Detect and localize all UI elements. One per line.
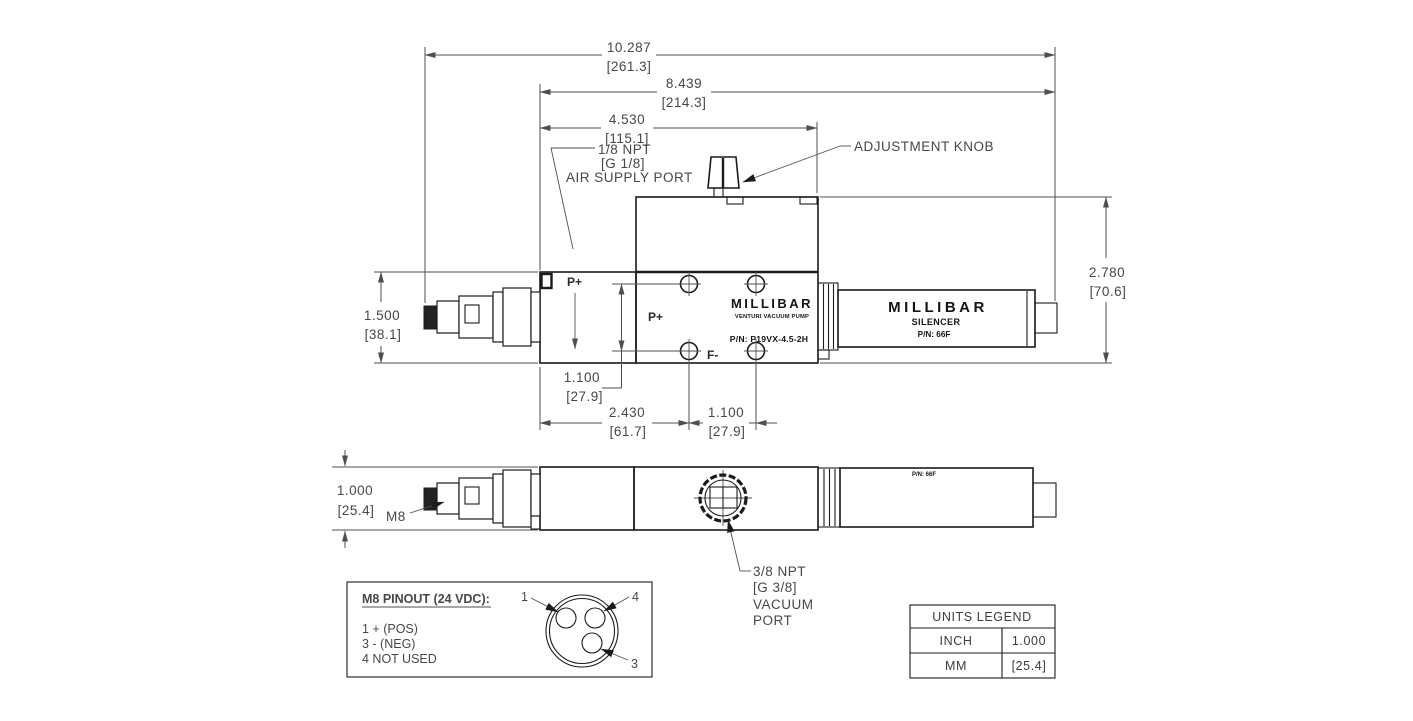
dim-overall-mm: [261.3] xyxy=(607,59,652,74)
pin-1-hole xyxy=(556,608,576,628)
m8-connector xyxy=(424,288,540,346)
f-minus-label: F- xyxy=(707,348,718,362)
silencer-body: MILLIBAR SILENCER P/N: 66F xyxy=(838,290,1035,347)
dim-body-silencer-in: 8.439 xyxy=(666,76,702,91)
pinout-line3: 4 NOT USED xyxy=(362,652,437,666)
top-tab-right xyxy=(800,197,817,204)
units-legend-mm-value: [25.4] xyxy=(1012,659,1047,673)
m8-connector-side xyxy=(424,470,540,527)
drawing-svg: P+ P+ F- MILLIBAR VENTURI VACUUM PUMP P/… xyxy=(0,0,1413,721)
mounting-hole xyxy=(677,272,701,296)
vacuum-port-line2: [G 3/8] xyxy=(753,580,797,595)
dim-hole-offset-h-in: 2.430 xyxy=(609,405,645,420)
silencer-end-cap xyxy=(1035,303,1057,333)
dim-body-silencer-mm: [214.3] xyxy=(662,95,707,110)
valve-notch-side xyxy=(531,516,540,529)
p-plus-valve-label: P+ xyxy=(567,275,582,289)
valve-body-side xyxy=(540,467,634,530)
silencer-part-number-side: P/N: 66F xyxy=(912,472,936,478)
pin-1-label: 1 xyxy=(521,590,528,604)
dim-pump-width-mm: [115.1] xyxy=(605,131,649,146)
dim-hole-offset-h-mm: [61.7] xyxy=(610,424,647,439)
silencer-interface xyxy=(818,283,838,359)
mounting-hole xyxy=(744,272,768,296)
silencer-part-number: P/N: 66F xyxy=(918,330,951,339)
top-view: P+ P+ F- MILLIBAR VENTURI VACUUM PUMP P/… xyxy=(424,157,1057,363)
pin-3-label: 3 xyxy=(631,657,638,671)
dim-pump-height-mm: [70.6] xyxy=(1090,284,1127,299)
pinout-line1: 1 + (POS) xyxy=(362,622,418,636)
engineering-drawing: P+ P+ F- MILLIBAR VENTURI VACUUM PUMP P/… xyxy=(0,0,1413,721)
dim-thickness-mm: [25.4] xyxy=(338,503,375,518)
pin-4-hole xyxy=(585,608,605,628)
dim-hole-spacing-v-mm: [27.9] xyxy=(566,389,603,404)
vacuum-port-line1: 3/8 NPT xyxy=(753,564,806,579)
dim-overall-in: 10.287 xyxy=(607,40,651,55)
silencer-name: SILENCER xyxy=(912,317,961,327)
m8-label: M8 xyxy=(386,509,406,524)
mounting-hole xyxy=(677,339,701,363)
pinout-heading: M8 PINOUT (24 VDC): xyxy=(362,592,490,606)
vacuum-port-line4: PORT xyxy=(753,613,792,628)
pinout-connector-face xyxy=(546,595,618,667)
units-legend-mm-label: MM xyxy=(945,659,967,673)
adjustment-knob-label: ADJUSTMENT KNOB xyxy=(854,139,994,154)
dim-overall: 10.287 [261.3] xyxy=(425,40,1055,303)
pinout-detail: M8 PINOUT (24 VDC): 1 + (POS) 3 - (NEG) … xyxy=(347,582,652,677)
air-supply-line3: AIR SUPPLY PORT xyxy=(566,170,693,185)
silencer-end-cap-side xyxy=(1033,483,1056,517)
pump-part-number: P/N: P19VX-4.5-2H xyxy=(730,334,808,344)
dim-hole-spacing-v-in: 1.100 xyxy=(564,370,600,385)
vacuum-port-callout: 3/8 NPT [G 3/8] VACUUM PORT xyxy=(728,520,814,628)
silencer-brand: MILLIBAR xyxy=(888,299,988,316)
dim-hole-spacing-v: 1.100 [27.9] xyxy=(564,284,679,404)
p-plus-pump-label: P+ xyxy=(648,310,663,324)
units-legend-inch-label: INCH xyxy=(940,634,973,648)
pin-3-hole xyxy=(582,633,602,653)
air-supply-line2: [G 1/8] xyxy=(601,156,645,171)
dim-hole-spacing-h-in: 1.100 xyxy=(708,405,744,420)
dim-hole-spacing-h-mm: [27.9] xyxy=(709,424,746,439)
units-legend-inch-value: 1.000 xyxy=(1012,634,1046,648)
units-legend: UNITS LEGEND INCH 1.000 MM [25.4] xyxy=(910,605,1055,678)
pump-brand: MILLIBAR xyxy=(731,296,813,311)
dim-pump-width-in: 4.530 xyxy=(609,112,645,127)
dim-pump-height: 2.780 [70.6] xyxy=(820,197,1126,363)
silencer-body-side: P/N: 66F xyxy=(840,468,1033,527)
pin-4-label: 4 xyxy=(632,590,639,604)
vacuum-port xyxy=(694,470,752,526)
dim-hole-spacing-h: 1.100 [27.9] xyxy=(689,405,777,439)
silencer-interface-side xyxy=(818,468,840,527)
dim-valve-height-mm: [38.1] xyxy=(365,327,402,342)
valve-notch xyxy=(542,274,552,288)
units-legend-title: UNITS LEGEND xyxy=(932,610,1032,624)
pinout-line2: 3 - (NEG) xyxy=(362,637,415,651)
bottom-view: P/N: 66F xyxy=(424,467,1056,530)
dimensions: 10.287 [261.3] 8.439 [214.3] 4.530 [115.… xyxy=(332,40,1126,548)
vacuum-port-line3: VACUUM xyxy=(753,597,814,612)
adjustment-knob xyxy=(708,157,739,197)
top-tab-left xyxy=(727,197,743,204)
callouts: 1/8 NPT [G 1/8] AIR SUPPLY PORT ADJUSTME… xyxy=(386,139,994,628)
dim-valve-height-in: 1.500 xyxy=(364,308,400,323)
m8-threaded-pin xyxy=(424,306,437,329)
dim-pump-height-in: 2.780 xyxy=(1089,265,1125,280)
dim-thickness-in: 1.000 xyxy=(337,483,373,498)
adjustment-knob-callout: ADJUSTMENT KNOB xyxy=(743,139,994,182)
pump-type: VENTURI VACUUM PUMP xyxy=(735,314,809,320)
